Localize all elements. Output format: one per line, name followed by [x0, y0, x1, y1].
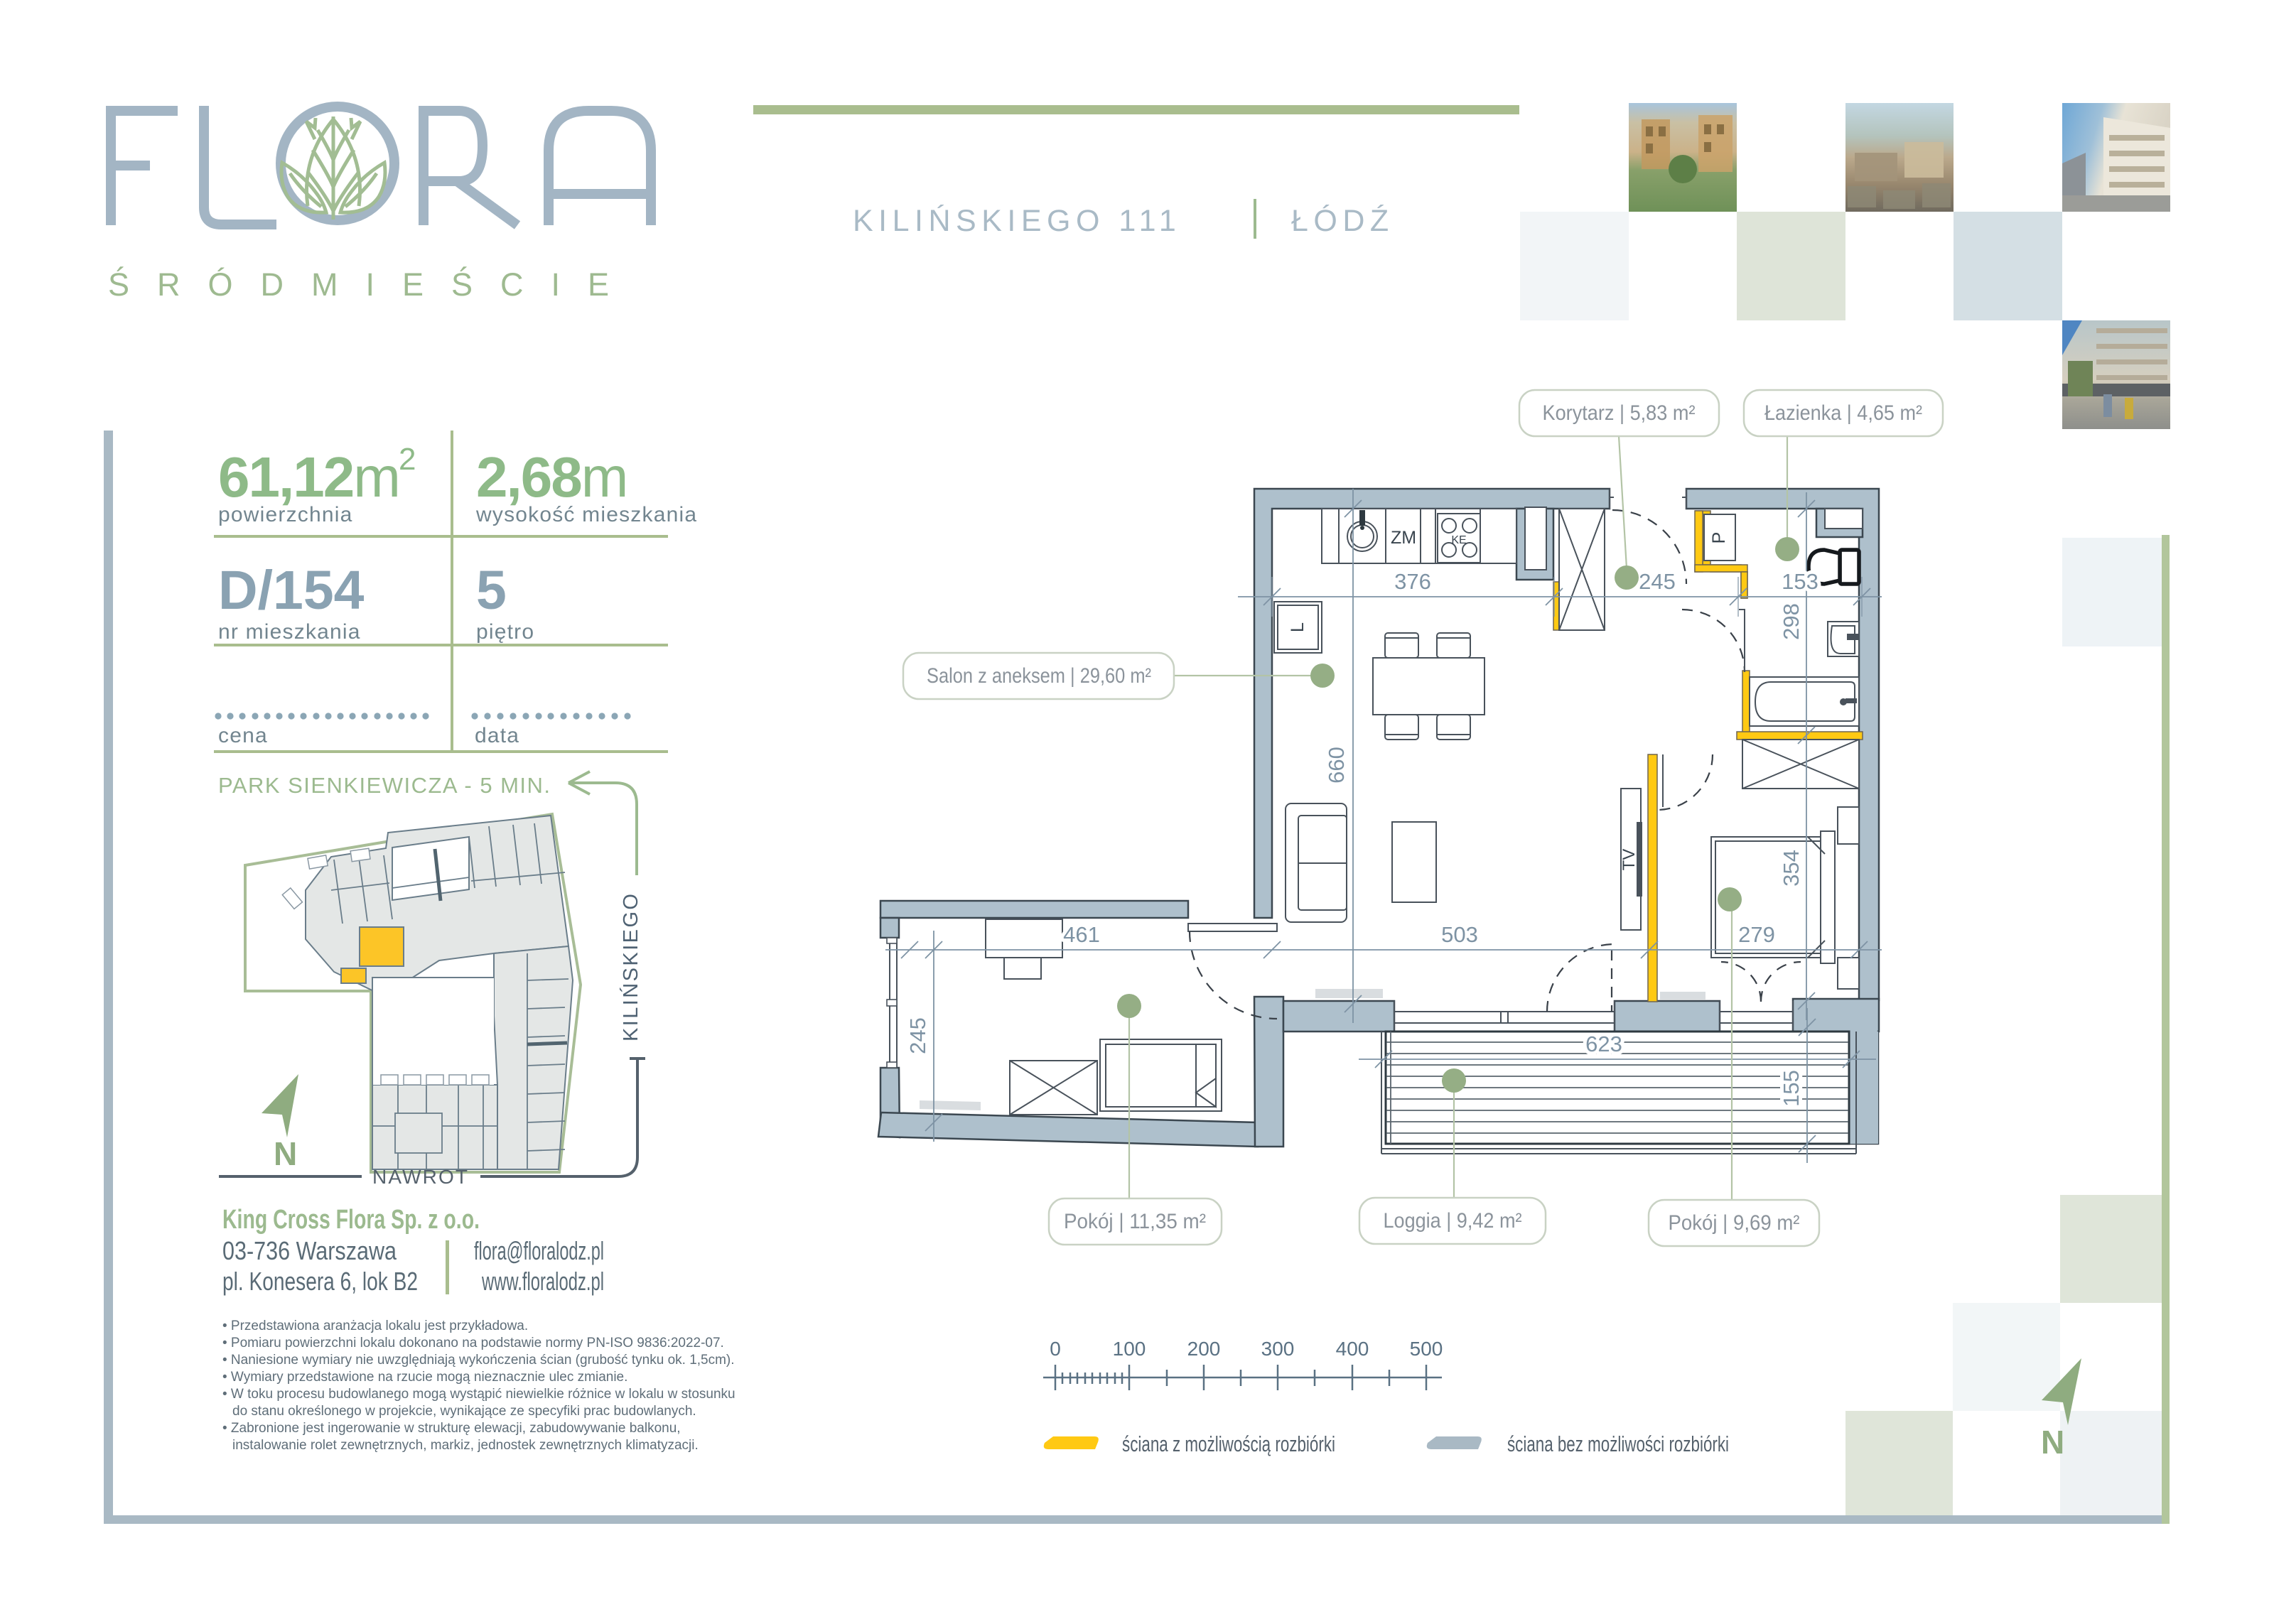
svg-text:Łazienka | 4,65 m²: Łazienka | 4,65 m²	[1764, 401, 1922, 425]
svg-text:• W toku procesu budowlanego m: • W toku procesu budowlanego mogą wystąp…	[222, 1387, 735, 1402]
svg-text:ściana z możliwością rozbiórki: ściana z możliwością rozbiórki	[1122, 1431, 1335, 1456]
svg-text:www.floralodz.pl: www.floralodz.pl	[481, 1267, 604, 1296]
svg-text:200: 200	[1187, 1338, 1221, 1360]
svg-text:wysokość mieszkania: wysokość mieszkania	[475, 503, 697, 526]
svg-text:61,12m: 61,12m	[218, 445, 401, 509]
svg-text:153: 153	[1782, 569, 1818, 594]
svg-text:400: 400	[1336, 1338, 1369, 1360]
svg-text:cena: cena	[218, 724, 268, 747]
svg-text:• Zabronione jest ingerowanie: • Zabronione jest ingerowanie w struktur…	[222, 1421, 681, 1436]
svg-text:D/154: D/154	[218, 560, 365, 621]
svg-text:2: 2	[399, 442, 416, 477]
svg-text:do stanu określonego w projekc: do stanu określonego w projekcie, wynika…	[232, 1404, 696, 1419]
svg-text:354: 354	[1779, 850, 1804, 887]
svg-text:ściana bez możliwości rozbiórk: ściana bez możliwości rozbiórki	[1507, 1431, 1729, 1456]
svg-text:powierzchnia: powierzchnia	[218, 503, 353, 526]
svg-text:660: 660	[1324, 747, 1349, 784]
svg-text:155: 155	[1779, 1070, 1804, 1107]
svg-text:• Wymiary przedstawione na rzu: • Wymiary przedstawione na rzucie mogą n…	[222, 1370, 627, 1385]
svg-text:TV: TV	[1620, 849, 1639, 871]
svg-text:instalowanie rolet zewnętrznyc: instalowanie rolet zewnętrznych, markiz,…	[232, 1438, 699, 1453]
svg-text:Salon z aneksem | 29,60 m²: Salon z aneksem | 29,60 m²	[927, 664, 1151, 688]
svg-text:ŚRÓDMIEŚCIE: ŚRÓDMIEŚCIE	[108, 266, 637, 303]
svg-text:Pokój | 9,69 m²: Pokój | 9,69 m²	[1669, 1211, 1800, 1235]
svg-text:ŁÓDŹ: ŁÓDŹ	[1291, 204, 1394, 238]
svg-text:245: 245	[1639, 569, 1676, 594]
svg-text:5: 5	[476, 560, 507, 621]
svg-text:nr mieszkania: nr mieszkania	[218, 620, 361, 644]
svg-text:• Pomiaru powierzchni lokalu d: • Pomiaru powierzchni lokalu dokonano na…	[222, 1336, 724, 1350]
svg-text:2,68m: 2,68m	[476, 445, 628, 509]
svg-text:L: L	[1288, 622, 1308, 632]
svg-text:503: 503	[1441, 922, 1478, 947]
svg-text:461: 461	[1063, 922, 1100, 947]
svg-text:N: N	[274, 1135, 297, 1172]
svg-text:Pokój | 11,35 m²: Pokój | 11,35 m²	[1064, 1210, 1206, 1233]
svg-text:300: 300	[1261, 1338, 1295, 1360]
svg-text:0: 0	[1050, 1338, 1061, 1360]
svg-text:N: N	[2041, 1424, 2064, 1461]
svg-text:KILIŃSKIEGO 111: KILIŃSKIEGO 111	[853, 204, 1181, 238]
svg-text:data: data	[475, 724, 519, 747]
svg-text:376: 376	[1394, 569, 1431, 594]
svg-text:03-736 Warszawa: 03-736 Warszawa	[222, 1236, 397, 1265]
svg-text:King Cross Flora Sp. z o.o.: King Cross Flora Sp. z o.o.	[222, 1205, 480, 1235]
svg-text:Loggia | 9,42 m²: Loggia | 9,42 m²	[1384, 1209, 1522, 1233]
svg-text:• Przedstawiona aranżacja loka: • Przedstawiona aranżacja lokalu jest pr…	[222, 1319, 528, 1333]
svg-text:245: 245	[905, 1017, 930, 1054]
svg-text:PARK SIENKIEWICZA - 5 MIN.: PARK SIENKIEWICZA - 5 MIN.	[218, 773, 550, 798]
svg-text:P: P	[1709, 532, 1729, 544]
svg-text:298: 298	[1779, 603, 1804, 640]
svg-text:623: 623	[1585, 1032, 1622, 1056]
svg-text:ZM: ZM	[1391, 528, 1416, 548]
svg-text:• Naniesione wymiary nie uwzgl: • Naniesione wymiary nie uwzględniają wy…	[222, 1353, 735, 1368]
svg-text:NAWROT: NAWROT	[372, 1166, 468, 1188]
svg-text:100: 100	[1113, 1338, 1146, 1360]
svg-text:KE: KE	[1451, 534, 1466, 546]
svg-text:500: 500	[1410, 1338, 1443, 1360]
svg-text:flora@floralodz.pl: flora@floralodz.pl	[474, 1236, 604, 1265]
svg-text:Korytarz | 5,83 m²: Korytarz | 5,83 m²	[1543, 401, 1696, 425]
svg-text:piętro: piętro	[476, 620, 534, 644]
svg-text:279: 279	[1738, 922, 1775, 947]
svg-text:pl. Konesera 6, lok B2: pl. Konesera 6, lok B2	[222, 1267, 418, 1296]
